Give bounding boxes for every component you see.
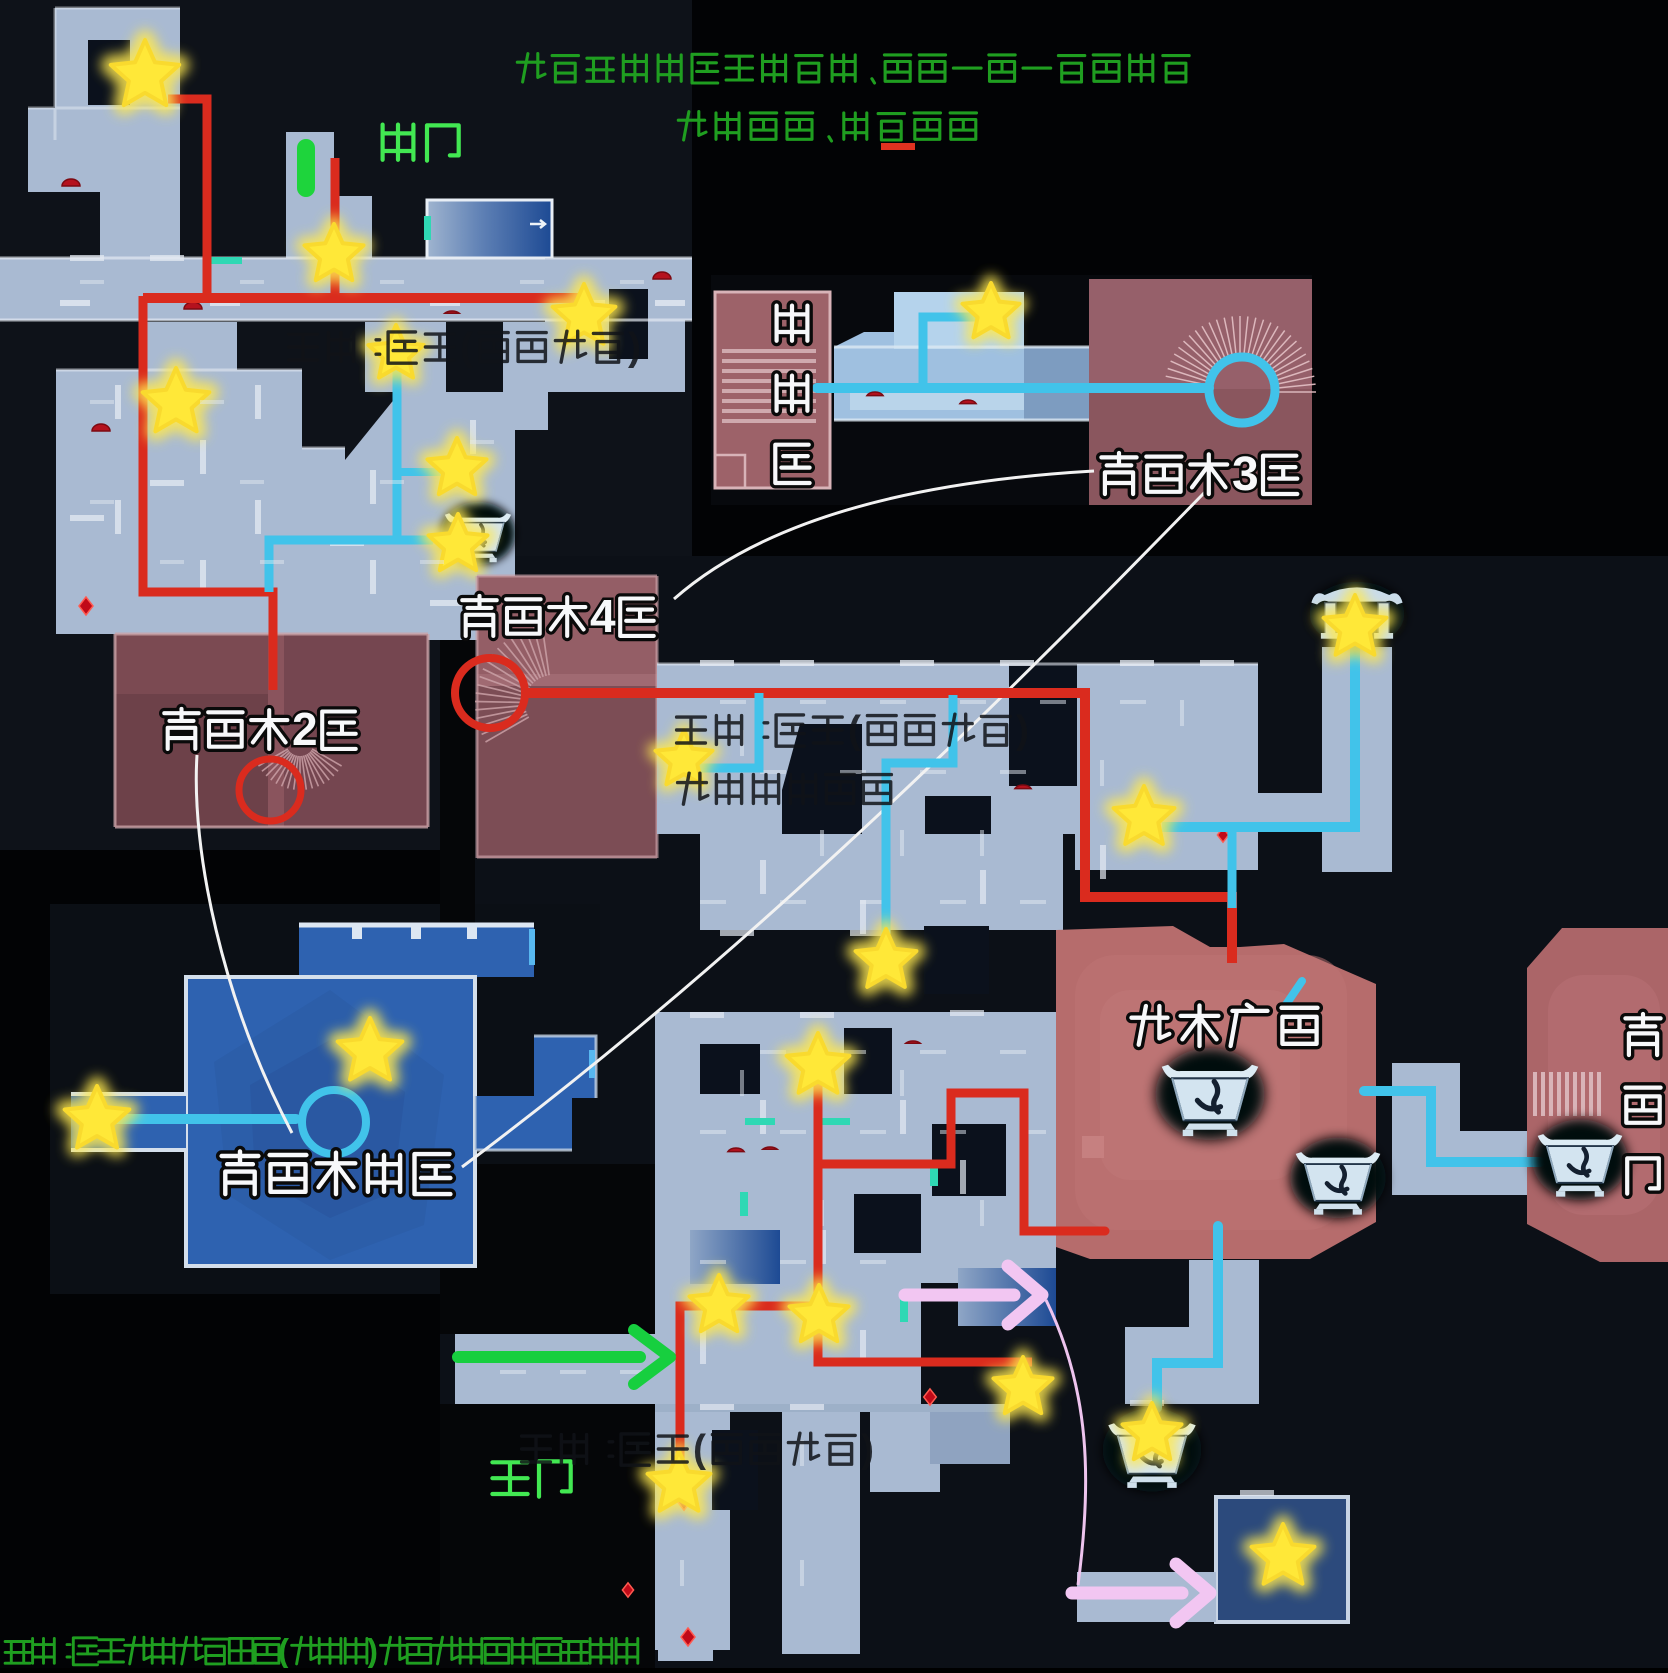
svg-text:(: (: [693, 1428, 706, 1471]
svg-text:(: (: [848, 709, 861, 752]
svg-text:(: (: [278, 1632, 289, 1668]
svg-text:4: 4: [590, 590, 616, 642]
svg-text:): ): [367, 1632, 378, 1668]
svg-text:(: (: [460, 326, 473, 369]
svg-text:): ): [1016, 709, 1029, 752]
svg-text:2: 2: [292, 703, 318, 755]
svg-text:3: 3: [1232, 448, 1259, 501]
svg-text:): ): [861, 1428, 874, 1471]
svg-text:): ): [628, 326, 641, 369]
